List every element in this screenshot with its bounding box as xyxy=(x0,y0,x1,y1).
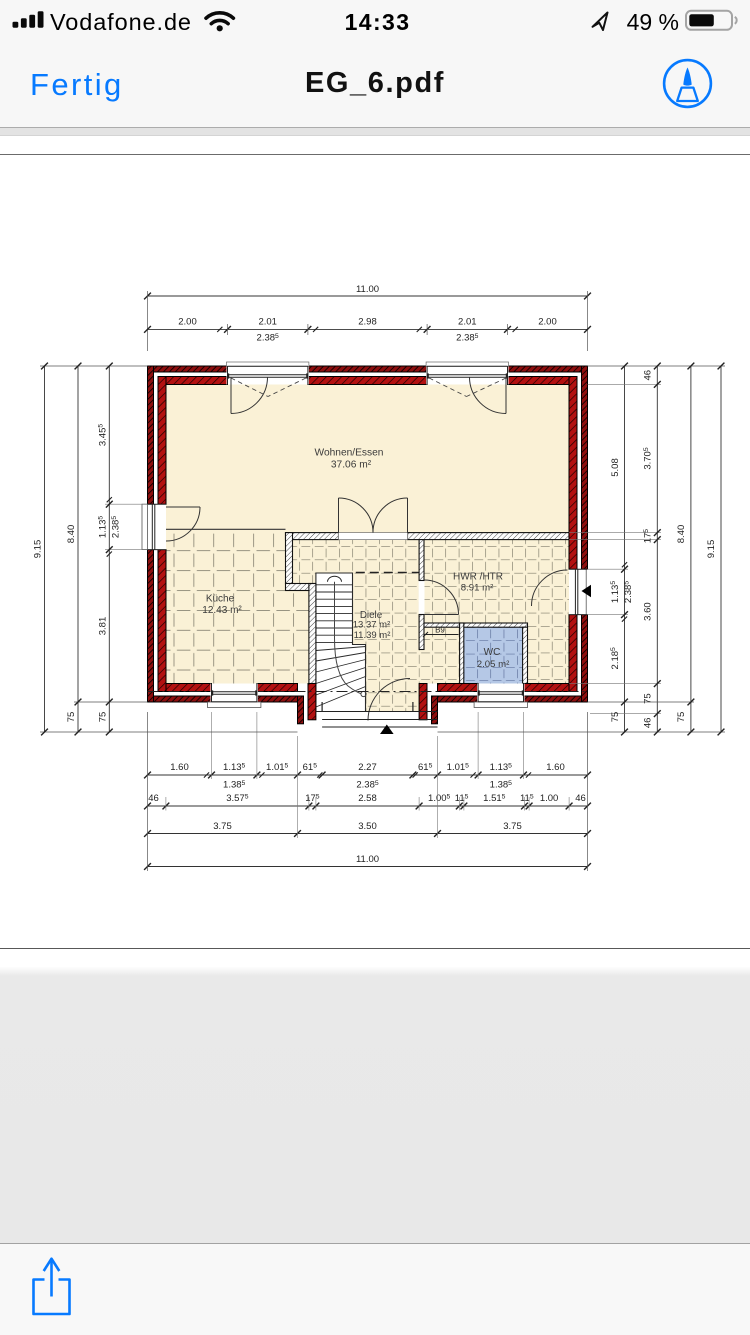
svg-text:46: 46 xyxy=(575,793,586,804)
svg-text:46: 46 xyxy=(643,718,654,729)
svg-text:11.00: 11.00 xyxy=(356,854,379,865)
svg-text:5.08: 5.08 xyxy=(610,458,621,477)
svg-text:Wohnen/Essen: Wohnen/Essen xyxy=(315,448,384,459)
svg-text:46: 46 xyxy=(148,793,159,804)
svg-text:1.515: 1.515 xyxy=(483,793,506,804)
svg-text:3.575: 3.575 xyxy=(226,793,249,804)
svg-text:WC: WC xyxy=(484,647,501,658)
svg-text:3.60: 3.60 xyxy=(643,602,654,621)
svg-text:75: 75 xyxy=(97,712,108,723)
svg-text:12.43 m²: 12.43 m² xyxy=(202,605,242,616)
svg-text:3.81: 3.81 xyxy=(97,617,108,636)
svg-text:2.00: 2.00 xyxy=(178,317,197,328)
svg-text:175: 175 xyxy=(643,529,654,544)
svg-text:1.135: 1.135 xyxy=(223,762,246,773)
svg-text:1.135: 1.135 xyxy=(610,581,621,604)
svg-text:3.75: 3.75 xyxy=(213,821,232,832)
svg-text:1.005: 1.005 xyxy=(428,793,451,804)
svg-text:2.98: 2.98 xyxy=(358,317,377,328)
svg-text:46: 46 xyxy=(643,370,654,381)
svg-text:75: 75 xyxy=(66,712,77,723)
svg-text:2.27: 2.27 xyxy=(358,762,377,773)
svg-text:2.385: 2.385 xyxy=(257,333,280,344)
svg-text:3.455: 3.455 xyxy=(97,424,108,447)
svg-text:1.385: 1.385 xyxy=(490,780,513,791)
svg-text:8.40: 8.40 xyxy=(66,525,77,544)
svg-text:615: 615 xyxy=(303,762,318,773)
svg-text:37.06 m²: 37.06 m² xyxy=(331,460,372,471)
svg-text:1.385: 1.385 xyxy=(223,780,246,791)
svg-text:2.05 m²: 2.05 m² xyxy=(477,659,510,670)
svg-text:3.50: 3.50 xyxy=(358,821,377,832)
svg-text:75: 75 xyxy=(610,712,621,723)
svg-text:75: 75 xyxy=(643,693,654,704)
svg-text:2.185: 2.185 xyxy=(610,647,621,670)
svg-text:Küche: Küche xyxy=(206,594,235,605)
svg-text:11.39 m²: 11.39 m² xyxy=(354,630,391,641)
svg-text:1.00: 1.00 xyxy=(540,793,559,804)
svg-text:1.60: 1.60 xyxy=(546,762,565,773)
svg-text:2.385: 2.385 xyxy=(456,333,479,344)
svg-text:1.60: 1.60 xyxy=(170,762,189,773)
svg-text:175: 175 xyxy=(305,793,320,804)
svg-text:2.01: 2.01 xyxy=(258,317,277,328)
svg-text:2.385: 2.385 xyxy=(111,516,122,539)
svg-text:9.15: 9.15 xyxy=(33,540,44,559)
svg-text:2.385: 2.385 xyxy=(356,780,379,791)
svg-text:11.00: 11.00 xyxy=(356,284,379,295)
svg-text:8.40: 8.40 xyxy=(676,525,687,544)
svg-text:1.135: 1.135 xyxy=(490,762,513,773)
svg-text:615: 615 xyxy=(418,762,433,773)
svg-text:3.705: 3.705 xyxy=(643,447,654,470)
svg-text:2.385: 2.385 xyxy=(623,581,634,604)
svg-text:1.015: 1.015 xyxy=(266,762,289,773)
svg-text:1.015: 1.015 xyxy=(447,762,470,773)
svg-text:2.58: 2.58 xyxy=(358,793,377,804)
svg-text:75: 75 xyxy=(676,712,687,723)
svg-text:3.75: 3.75 xyxy=(503,821,522,832)
svg-text:2.00: 2.00 xyxy=(538,317,557,328)
svg-text:1.135: 1.135 xyxy=(97,516,108,539)
svg-text:B9: B9 xyxy=(435,626,445,635)
svg-text:2.01: 2.01 xyxy=(458,317,477,328)
svg-text:13.37 m²: 13.37 m² xyxy=(353,620,391,631)
svg-text:HWR /HTR: HWR /HTR xyxy=(453,572,503,583)
svg-text:8.91 m²: 8.91 m² xyxy=(461,583,494,594)
svg-text:9.15: 9.15 xyxy=(706,540,717,559)
